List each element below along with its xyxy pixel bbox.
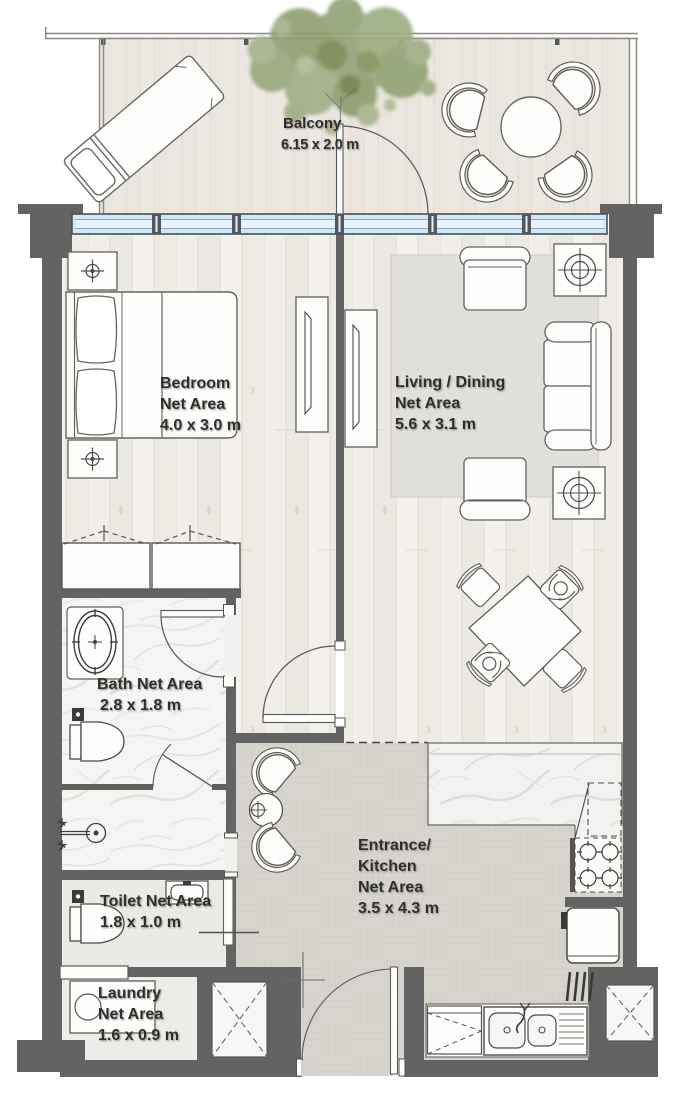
svg-text:Living / Dining: Living / Dining: [395, 374, 505, 391]
svg-text:Entrance/: Entrance/: [358, 837, 431, 854]
svg-text:Net Area: Net Area: [358, 879, 423, 896]
svg-text:3.5 x 4.3 m: 3.5 x 4.3 m: [358, 900, 439, 917]
svg-text:5.6 x 3.1 m: 5.6 x 3.1 m: [395, 416, 476, 433]
svg-text:Bath Net Area: Bath Net Area: [97, 676, 202, 693]
svg-text:1.8 x 1.0 m: 1.8 x 1.0 m: [100, 914, 181, 931]
svg-text:Balcony: Balcony: [283, 115, 342, 132]
svg-text:1.6 x 0.9 m: 1.6 x 0.9 m: [98, 1027, 179, 1044]
svg-text:Kitchen: Kitchen: [358, 858, 417, 875]
svg-text:Toilet Net Area: Toilet Net Area: [100, 893, 211, 910]
svg-text:6.15 x 2.0 m: 6.15 x 2.0 m: [281, 137, 359, 153]
svg-text:Net Area: Net Area: [98, 1006, 163, 1023]
svg-text:4.0 x 3.0 m: 4.0 x 3.0 m: [160, 417, 241, 434]
svg-text:2.8 x 1.8 m: 2.8 x 1.8 m: [100, 697, 181, 714]
svg-text:Net Area: Net Area: [395, 395, 460, 412]
svg-text:Laundry: Laundry: [98, 985, 161, 1002]
svg-text:Bedroom: Bedroom: [160, 375, 230, 392]
svg-text:Net Area: Net Area: [160, 396, 225, 413]
